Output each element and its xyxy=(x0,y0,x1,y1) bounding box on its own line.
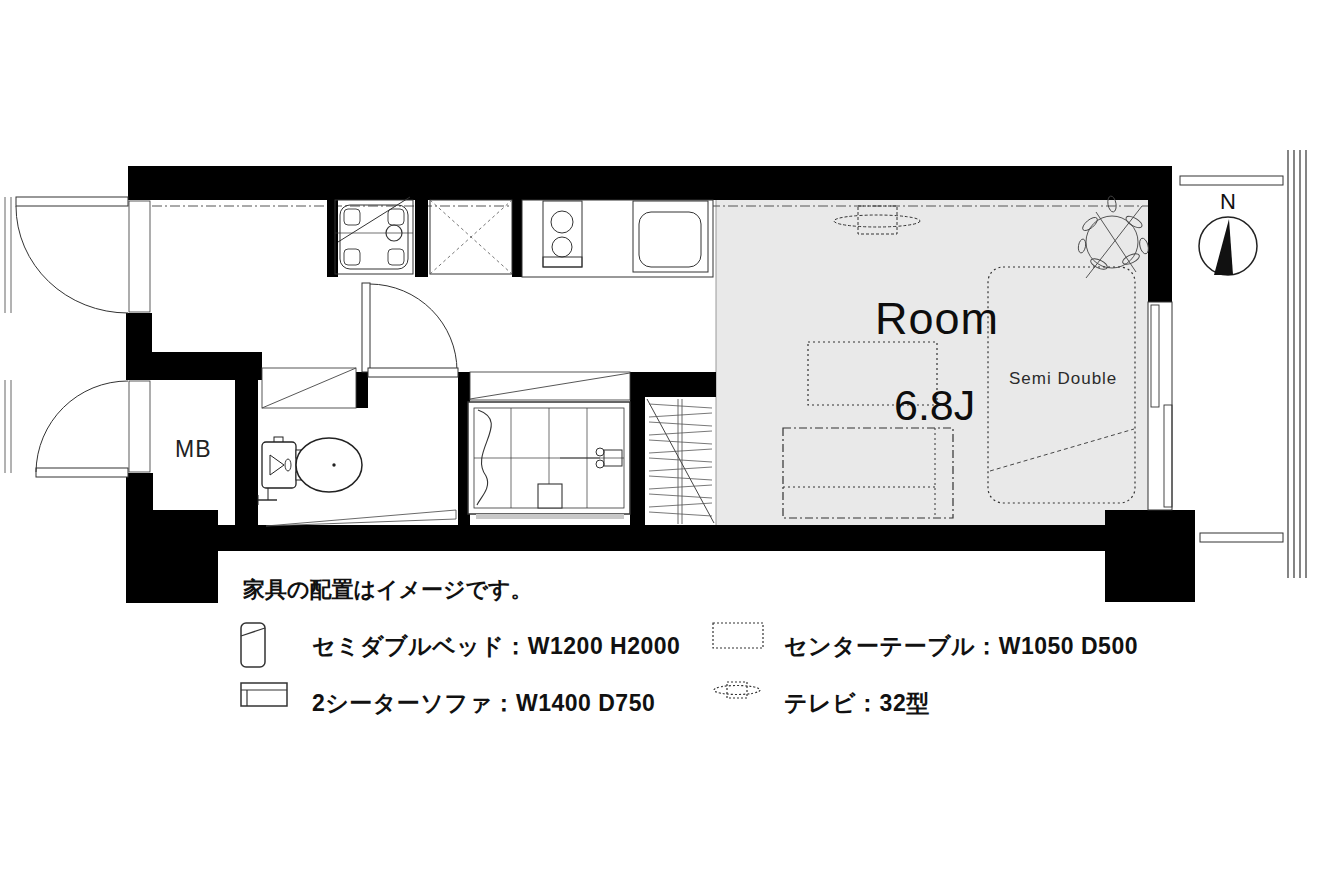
closet xyxy=(647,399,714,524)
floor-plan-page: Room 6.8J Semi Double MB N 家具の配置はイメージです。… xyxy=(0,0,1330,885)
washing-machine-pan xyxy=(335,197,413,274)
legend-label-bed: セミダブルベッド：W1200 H2000 xyxy=(312,631,680,662)
bath-stool xyxy=(538,484,562,508)
bed-label: Semi Double xyxy=(1009,369,1117,389)
room-title: Room xyxy=(875,293,999,345)
compass-north-label: N xyxy=(1220,189,1236,215)
stove xyxy=(543,201,582,267)
legend-row-bed: セミダブルベッド：W1200 H2000 xyxy=(240,622,680,670)
main-room-floor xyxy=(716,200,1148,525)
entrance-door xyxy=(16,197,150,313)
legend-label-sofa: 2シーターソファ：W1400 D750 xyxy=(312,688,655,719)
legend-row-table: センターテーブル：W1050 D500 xyxy=(712,622,1138,670)
furniture-note: 家具の配置はイメージです。 xyxy=(243,575,533,605)
balcony xyxy=(1180,150,1306,578)
legend-label-table: センターテーブル：W1050 D500 xyxy=(784,631,1138,662)
meter-box-door xyxy=(36,381,150,477)
overhead-shelf xyxy=(262,368,356,408)
meter-box-label: MB xyxy=(175,436,212,463)
toilet-door-wedge xyxy=(266,510,456,526)
toilet xyxy=(258,437,362,505)
room-size-label: 6.8J xyxy=(894,381,975,430)
kitchen-sink xyxy=(633,201,708,272)
refrigerator-space xyxy=(430,200,512,274)
kitchen-counter xyxy=(522,200,713,277)
legend-row-sofa: 2シーターソファ：W1400 D750 xyxy=(240,679,655,727)
balcony-window xyxy=(1148,302,1172,510)
washroom-door xyxy=(362,283,458,377)
compass xyxy=(1199,217,1257,275)
legend-label-tv: テレビ：32型 xyxy=(784,688,930,719)
exterior-boundary-lines xyxy=(5,197,11,473)
legend-row-tv: テレビ：32型 xyxy=(712,679,930,727)
vanity-counter xyxy=(470,372,630,400)
shower-room xyxy=(468,402,630,519)
